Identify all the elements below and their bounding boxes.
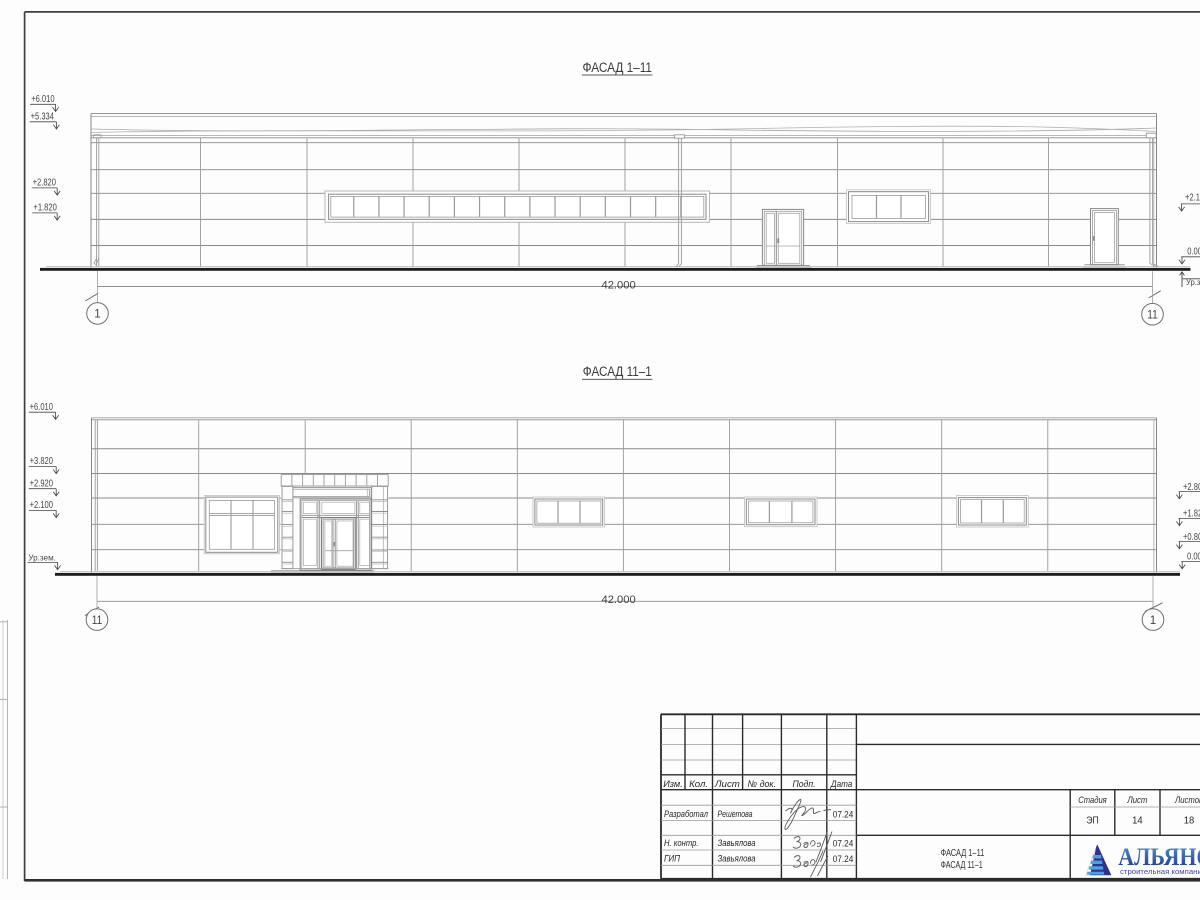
svg-text:1: 1 [94, 309, 100, 321]
svg-text:11: 11 [92, 615, 103, 627]
svg-text:42.000: 42.000 [602, 594, 636, 606]
svg-text:+2.920: +2.920 [30, 478, 54, 489]
svg-text:ФАСАД 11–1: ФАСАД 11–1 [941, 860, 983, 871]
svg-text:ФАСАД 1–11: ФАСАД 1–11 [583, 60, 653, 76]
svg-text:ГИП: ГИП [664, 853, 680, 864]
svg-text:ЭП: ЭП [1086, 816, 1099, 827]
svg-text:Лист: Лист [1127, 795, 1148, 806]
svg-text:14: 14 [1132, 816, 1143, 827]
svg-text:Завьялова: Завьялова [718, 837, 756, 848]
svg-text:Ур.зем.: Ур.зем. [1186, 278, 1200, 287]
svg-text:1: 1 [1150, 615, 1156, 627]
svg-text:+6.010: +6.010 [31, 94, 55, 105]
svg-text:Дата: Дата [830, 779, 852, 790]
svg-text:Кол.: Кол. [689, 779, 708, 790]
svg-text:+1.820: +1.820 [1183, 508, 1200, 519]
svg-text:Завьялова: Завьялова [718, 853, 756, 864]
svg-text:Стадия: Стадия [1078, 795, 1107, 806]
svg-text:Решетова: Решетова [718, 808, 753, 819]
svg-text:0.000: 0.000 [1187, 246, 1200, 257]
svg-text:42.000: 42.000 [602, 279, 636, 291]
svg-text:18: 18 [1184, 816, 1195, 827]
svg-text:+2.820: +2.820 [33, 177, 57, 188]
svg-text:+2.100: +2.100 [30, 500, 54, 511]
svg-text:+5.334: +5.334 [31, 111, 55, 122]
svg-text:строительная компания: строительная компания [1120, 867, 1200, 876]
svg-text:ФАСАД 11–1: ФАСАД 11–1 [583, 364, 652, 380]
svg-text:+1.820: +1.820 [33, 202, 57, 213]
svg-text:Подп.: Подп. [793, 779, 816, 790]
svg-text:Н. контр.: Н. контр. [664, 837, 699, 848]
svg-text:№ док.: № док. [748, 779, 777, 790]
svg-text:Лист: Лист [714, 779, 740, 790]
svg-text:ФАСАД 1–11: ФАСАД 1–11 [941, 848, 985, 859]
svg-text:+3.820: +3.820 [30, 456, 54, 467]
svg-text:07.24: 07.24 [833, 837, 854, 848]
svg-text:Листов: Листов [1174, 795, 1200, 806]
svg-text:07.24: 07.24 [833, 853, 854, 864]
svg-text:+2.100: +2.100 [1185, 193, 1200, 204]
svg-text:+0.800: +0.800 [1183, 532, 1200, 543]
svg-text:Разработал: Разработал [664, 808, 709, 819]
svg-text:11: 11 [1147, 309, 1158, 321]
svg-text:Изм.: Изм. [663, 779, 683, 790]
svg-text:Ур.зем.: Ур.зем. [28, 553, 56, 562]
svg-text:+6.010: +6.010 [30, 402, 54, 413]
svg-text:0.000: 0.000 [1187, 552, 1200, 563]
svg-text:07.24: 07.24 [833, 808, 854, 819]
